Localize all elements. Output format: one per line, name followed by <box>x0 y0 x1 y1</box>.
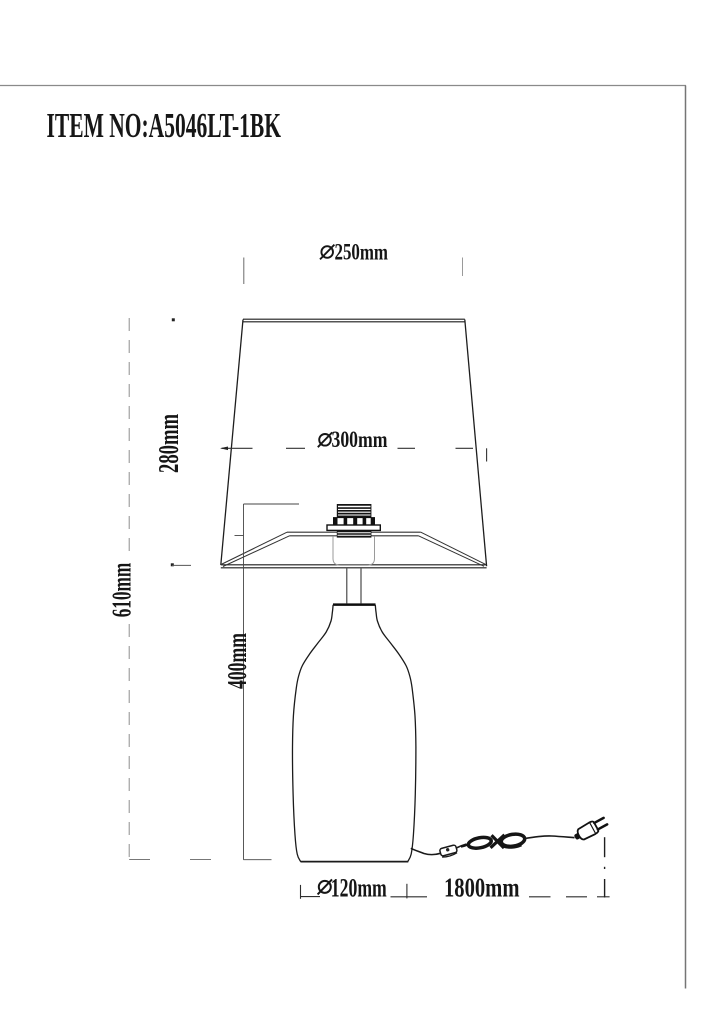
svg-text:ITEM NO:A5046LT-1BK: ITEM NO:A5046LT-1BK <box>47 106 282 145</box>
svg-text:1800mm: 1800mm <box>444 872 520 903</box>
svg-text:250mm: 250mm <box>335 239 389 264</box>
svg-text:120mm: 120mm <box>331 872 387 902</box>
svg-text:280mm: 280mm <box>154 414 185 473</box>
svg-text:400mm: 400mm <box>222 633 252 689</box>
svg-text:610mm: 610mm <box>107 562 137 617</box>
svg-text:300mm: 300mm <box>332 427 388 453</box>
